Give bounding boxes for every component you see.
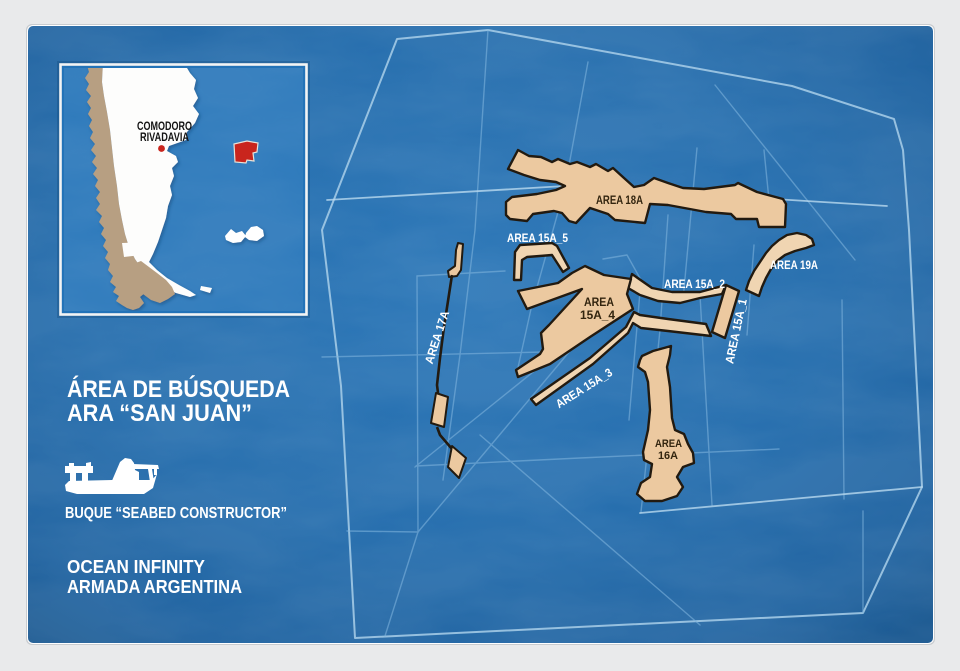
svg-text:AREA 15A_2: AREA 15A_2	[664, 277, 725, 291]
svg-text:AREA: AREA	[584, 295, 614, 309]
svg-text:16A: 16A	[658, 450, 678, 462]
svg-text:AREA 19A: AREA 19A	[770, 258, 818, 272]
svg-text:AREA 15A_5: AREA 15A_5	[507, 231, 568, 245]
svg-text:BUQUE “SEABED CONSTRUCTOR”: BUQUE “SEABED CONSTRUCTOR”	[65, 505, 287, 522]
svg-text:RIVADAVIA: RIVADAVIA	[140, 132, 189, 144]
svg-text:OCEAN INFINITY: OCEAN INFINITY	[67, 557, 205, 577]
svg-text:AREA 18A: AREA 18A	[596, 193, 643, 207]
svg-text:ÁREA DE BÚSQUEDA: ÁREA DE BÚSQUEDA	[67, 375, 290, 403]
svg-text:AREA: AREA	[655, 438, 682, 450]
svg-text:ARMADA ARGENTINA: ARMADA ARGENTINA	[67, 577, 242, 597]
svg-text:ARA “SAN JUAN”: ARA “SAN JUAN”	[67, 400, 252, 427]
svg-text:15A_4: 15A_4	[580, 308, 615, 322]
